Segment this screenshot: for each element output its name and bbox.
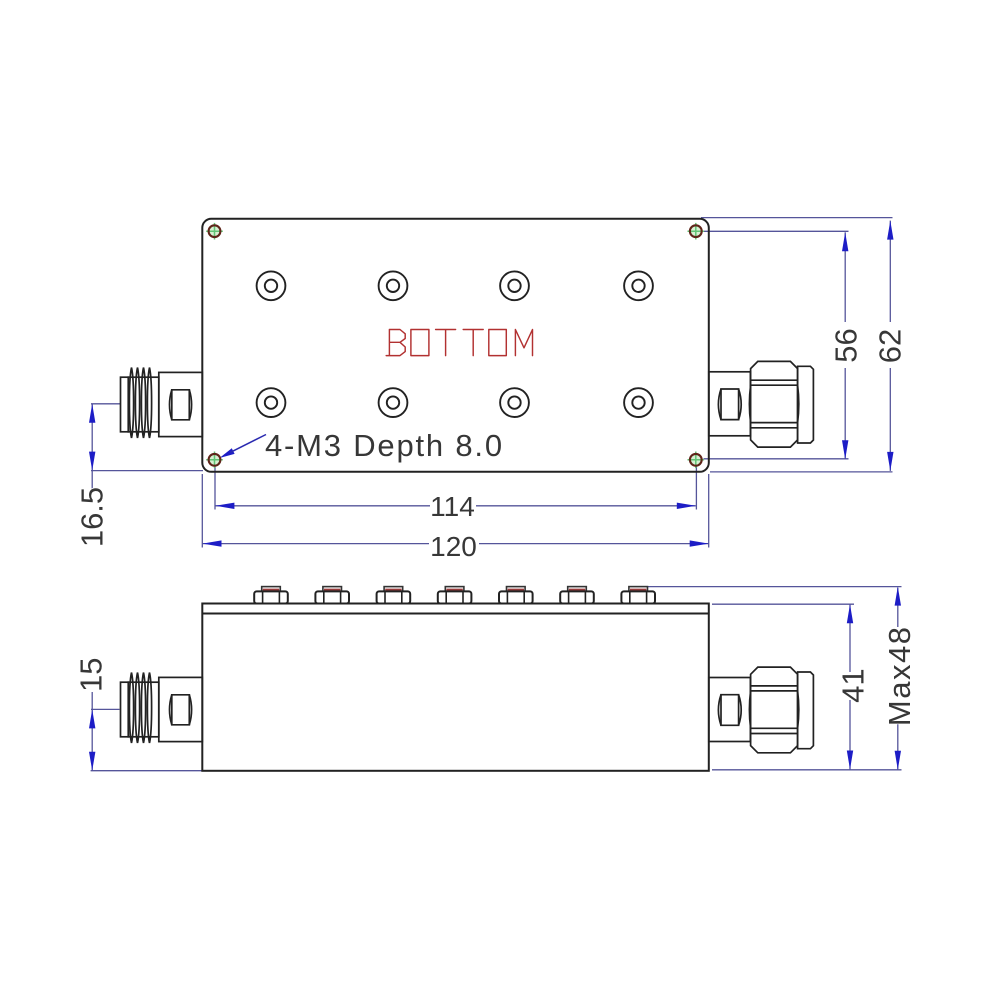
- svg-text:41: 41: [836, 668, 871, 702]
- svg-text:114: 114: [430, 491, 475, 522]
- svg-text:Max48: Max48: [882, 626, 917, 727]
- svg-text:16.5: 16.5: [74, 487, 109, 547]
- svg-text:56: 56: [828, 328, 863, 362]
- svg-text:15: 15: [74, 658, 109, 692]
- svg-text:62: 62: [873, 329, 908, 363]
- svg-text:4-M3 Depth 8.0: 4-M3 Depth 8.0: [265, 428, 504, 463]
- svg-text:120: 120: [430, 531, 477, 562]
